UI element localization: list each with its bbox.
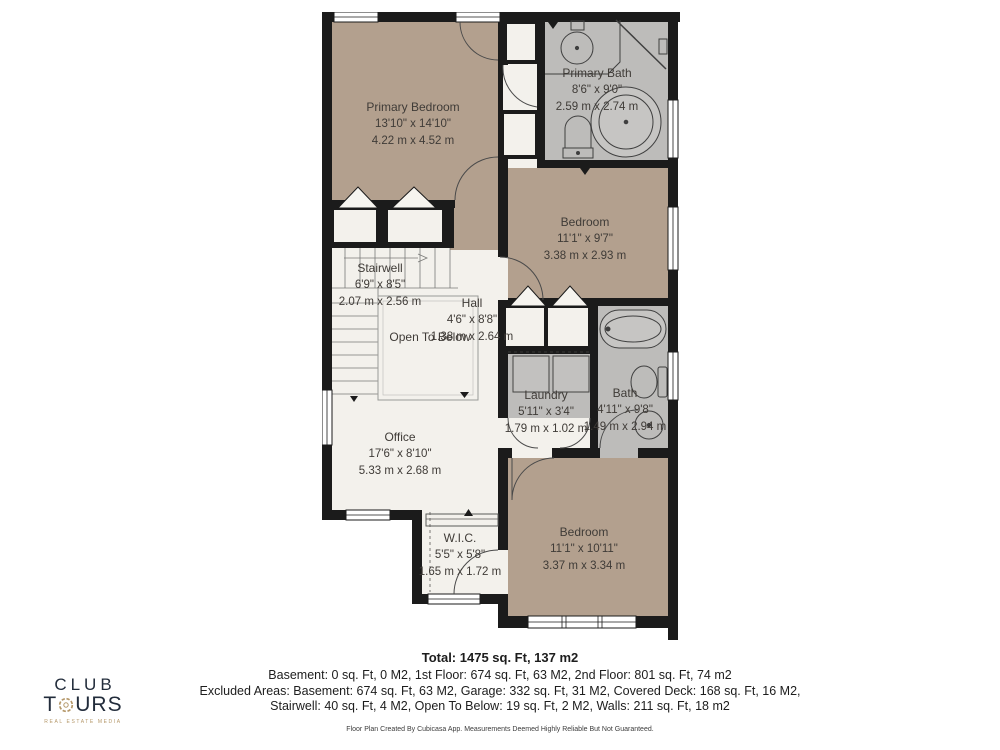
room-dim-imperial: 4'11" x 9'8" xyxy=(584,402,666,419)
room-dim-imperial: 13'10" x 14'10" xyxy=(366,116,459,133)
room-label-bedroom-2: Bedroom 11'1" x 9'7" 3.38 m x 2.93 m xyxy=(544,214,626,265)
room-label-wic: W.I.C. 5'5" x 5'8" 1.65 m x 1.72 m xyxy=(419,530,501,581)
logo-tours-urs: URS xyxy=(75,694,122,716)
room-dim-metric: 5.33 m x 2.68 m xyxy=(359,463,441,480)
room-name: Primary Bedroom xyxy=(366,99,459,116)
room-dim-metric: 3.37 m x 3.34 m xyxy=(543,558,625,575)
total-area: Total: 1475 sq. Ft, 137 m2 xyxy=(0,650,1000,665)
room-name: Hall xyxy=(431,295,513,312)
room-dim-metric: 4.22 m x 4.52 m xyxy=(366,133,459,150)
room-dim-metric: 1.65 m x 1.72 m xyxy=(419,564,501,581)
room-name: Laundry xyxy=(505,387,587,404)
room-dim-imperial: 11'1" x 10'11" xyxy=(543,541,625,558)
room-dim-imperial: 11'1" x 9'7" xyxy=(544,231,626,248)
room-label-open-to-below: Open To Below xyxy=(389,329,470,346)
room-dim-imperial: 5'5" x 5'8" xyxy=(419,547,501,564)
logo-tours-text: T URS xyxy=(37,694,129,716)
room-name: Open To Below xyxy=(389,329,470,346)
room-name: Bedroom xyxy=(543,524,625,541)
room-dim-imperial: 4'6" x 8'8" xyxy=(431,312,513,329)
aperture-icon xyxy=(58,697,74,713)
room-dim-imperial: 8'6" x 9'0" xyxy=(556,82,638,99)
room-name: Primary Bath xyxy=(556,65,638,82)
laundry-fixtures xyxy=(508,352,590,392)
room-label-primary-bedroom: Primary Bedroom 13'10" x 14'10" 4.22 m x… xyxy=(366,99,459,150)
summary-line-excluded-2: Stairwell: 40 sq. Ft, 4 M2, Open To Belo… xyxy=(0,699,1000,715)
page: Primary Bedroom 13'10" x 14'10" 4.22 m x… xyxy=(0,0,1000,750)
room-name: Stairwell xyxy=(339,260,421,277)
room-label-bath-2: Bath 4'11" x 9'8" 1.49 m x 2.94 m xyxy=(584,385,666,436)
room-label-office: Office 17'6" x 8'10" 5.33 m x 2.68 m xyxy=(359,429,441,480)
room-dim-metric: 1.79 m x 1.02 m xyxy=(505,421,587,438)
summary-line-floors: Basement: 0 sq. Ft, 0 M2, 1st Floor: 674… xyxy=(0,668,1000,684)
room-dim-metric: 2.59 m x 2.74 m xyxy=(556,99,638,116)
floor-plan: Primary Bedroom 13'10" x 14'10" 4.22 m x… xyxy=(322,12,680,650)
room-name: Office xyxy=(359,429,441,446)
room-dim-metric: 1.49 m x 2.94 m xyxy=(584,419,666,436)
room-label-bedroom-3: Bedroom 11'1" x 10'11" 3.37 m x 3.34 m xyxy=(543,524,625,575)
room-name: W.I.C. xyxy=(419,530,501,547)
club-tours-logo: CLUB T URS REAL ESTATE MEDIA xyxy=(37,676,129,725)
room-label-stairwell: Stairwell 6'9" x 8'5" 2.07 m x 2.56 m xyxy=(339,260,421,311)
area-summary: Total: 1475 sq. Ft, 137 m2 Basement: 0 s… xyxy=(0,650,1000,715)
room-label-primary-bath: Primary Bath 8'6" x 9'0" 2.59 m x 2.74 m xyxy=(556,65,638,116)
room-label-laundry: Laundry 5'11" x 3'4" 1.79 m x 1.02 m xyxy=(505,387,587,438)
closet-shelf xyxy=(426,514,498,526)
room-dim-imperial: 6'9" x 8'5" xyxy=(339,277,421,294)
logo-tours-t: T xyxy=(43,694,57,716)
room-dim-metric: 2.07 m x 2.56 m xyxy=(339,294,421,311)
summary-line-excluded: Excluded Areas: Basement: 674 sq. Ft, 63… xyxy=(0,684,1000,700)
room-dim-metric: 3.38 m x 2.93 m xyxy=(544,248,626,265)
room-dim-imperial: 17'6" x 8'10" xyxy=(359,446,441,463)
room-dim-imperial: 5'11" x 3'4" xyxy=(505,404,587,421)
logo-tagline: REAL ESTATE MEDIA xyxy=(37,719,129,725)
room-name: Bedroom xyxy=(544,214,626,231)
logo-club-text: CLUB xyxy=(41,676,129,694)
disclaimer-text: Floor Plan Created By Cubicasa App. Meas… xyxy=(0,726,1000,733)
room-name: Bath xyxy=(584,385,666,402)
